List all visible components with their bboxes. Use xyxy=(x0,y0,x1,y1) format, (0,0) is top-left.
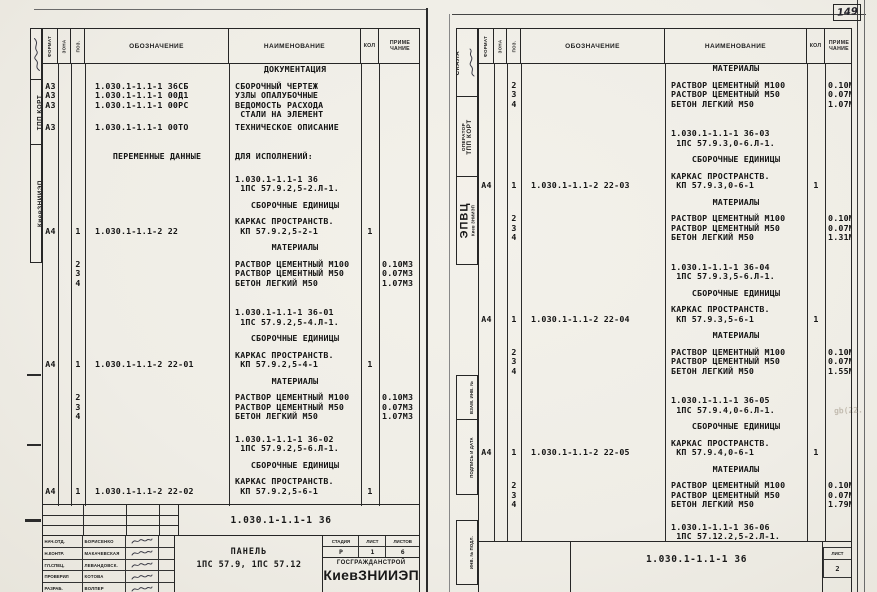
cell-designation xyxy=(521,81,665,91)
cell-note xyxy=(825,272,851,282)
cell-pos xyxy=(507,155,521,165)
signature-icon xyxy=(126,560,159,571)
system-cell: СКАЛА xyxy=(456,28,478,97)
spec-line: А3 1.030.1-1.1-1 00ТО ТЕХНИЧЕСКОЕ ОПИСАН… xyxy=(43,123,419,133)
cell-name: КП 57.9.2,5-4-1 xyxy=(229,360,361,370)
left-title-block: 1.030.1-1.1-1 36 НАЧ.ОТД. БОРИСЕНКО Н.КО… xyxy=(43,504,419,592)
cell-pos xyxy=(507,129,521,139)
cell-zone xyxy=(58,269,71,279)
cell-designation xyxy=(521,233,665,243)
signature-row: НАЧ.ОТД. БОРИСЕНКО xyxy=(43,536,174,548)
cell-note xyxy=(379,201,419,211)
cell-name: МАТЕРИАЛЫ xyxy=(665,465,807,475)
center-label: ЭПВЦ xyxy=(459,203,471,239)
cell-designation: ПЕРЕМЕННЫЕ ДАННЫЕ xyxy=(85,152,229,162)
cell-qty xyxy=(361,279,379,289)
spec-line: 3 РАСТВОР ЦЕМЕНТНЫЙ М50 0.07М3 xyxy=(43,403,419,413)
col-name: НАИМЕНОВАНИЕ xyxy=(665,29,807,63)
cell-format: А4 xyxy=(479,448,494,458)
spec-line: 4 БЕТОН ЛЕГКИЙ М50 1.07М3 xyxy=(479,100,851,110)
cell-zone xyxy=(58,377,71,387)
cell-designation xyxy=(85,393,229,403)
cell-zone xyxy=(494,172,507,182)
cell-format xyxy=(479,422,494,432)
cell-note xyxy=(379,444,419,454)
cell-pos: 4 xyxy=(507,367,521,377)
spec-line: СБОРОЧНЫЕ ЕДИНИЦЫ xyxy=(479,155,851,165)
cell-format xyxy=(479,214,494,224)
cell-note xyxy=(379,351,419,361)
side-org-cell: КиевЗНИИЭП xyxy=(30,145,42,263)
spec-line: МАТЕРИАЛЫ xyxy=(479,198,851,208)
cell-format xyxy=(479,64,494,74)
page-number-box: 149 xyxy=(833,4,861,21)
cell-name: БЕТОН ЛЕГКИЙ М50 xyxy=(229,279,361,289)
stamp-vzam-strip: ВЗАМ. ИНВ. № ПОДПИСЬ И ДАТА xyxy=(456,375,478,495)
cell-qty xyxy=(807,289,825,299)
cell-qty: 1 xyxy=(807,181,825,191)
cell-designation xyxy=(521,406,665,416)
spec-line: 1.030.1-1.1-1 36-02 xyxy=(43,435,419,445)
cell-pos xyxy=(71,444,85,454)
person-name: БОРИСЕНКО xyxy=(83,536,126,547)
stamp-vzam-label: ВЗАМ. ИНВ. № xyxy=(469,381,474,414)
sheet-label: ЛИСТ xyxy=(824,548,851,560)
spec-line: 3 РАСТВОР ЦЕМЕНТНЫЙ М50 0.07М3 xyxy=(479,90,851,100)
cell-note xyxy=(379,110,419,120)
side-signature-cell xyxy=(30,28,42,80)
cell-qty xyxy=(361,101,379,111)
cell-note xyxy=(379,360,419,370)
spec-line: 1.030.1-1.1-1 36-05 xyxy=(479,396,851,406)
cell-name: МАТЕРИАЛЫ xyxy=(665,198,807,208)
cell-designation xyxy=(85,184,229,194)
cell-designation xyxy=(521,367,665,377)
col-note: ПРИМЕ ЧАНИЕ xyxy=(825,29,853,63)
cell-qty xyxy=(807,396,825,406)
cell-qty xyxy=(361,243,379,253)
left-page-top-edge xyxy=(34,9,426,10)
cell-designation xyxy=(521,198,665,208)
cell-format: А4 xyxy=(479,315,494,325)
spec-line: 2 РАСТВОР ЦЕМЕНТНЫЙ М100 0.10М3 xyxy=(479,348,851,358)
cell-zone xyxy=(58,318,71,328)
cell-pos xyxy=(507,198,521,208)
cell-note xyxy=(825,315,851,325)
cell-format xyxy=(479,523,494,533)
cell-qty xyxy=(361,260,379,270)
cell-designation xyxy=(521,422,665,432)
spec-line: СТАЛИ НА ЭЛЕМЕНТ xyxy=(43,110,419,120)
sheet-value: 2 xyxy=(824,560,851,578)
cell-note xyxy=(825,139,851,149)
cell-designation xyxy=(521,289,665,299)
cell-format: А4 xyxy=(43,360,58,370)
org-name-1: ГОСГРАЖДАНСТРОЙ xyxy=(323,560,419,566)
role-label: ПРОВЕРИЛ xyxy=(43,571,83,582)
cell-name: СБОРОЧНЫЕ ЕДИНИЦЫ xyxy=(229,201,361,211)
cell-pos xyxy=(71,175,85,185)
cell-qty xyxy=(807,523,825,533)
cell-pos xyxy=(71,461,85,471)
signature-row: Н.КОНТР. МАКАЧЕВСКАЯ xyxy=(43,548,174,560)
spec-line: 4 БЕТОН ЛЕГКИЙ М50 1.07М3 xyxy=(43,279,419,289)
cell-qty xyxy=(807,139,825,149)
cell-qty xyxy=(807,155,825,165)
right-page-edge-line-2 xyxy=(864,0,865,592)
cell-note xyxy=(825,439,851,449)
cell-zone xyxy=(58,308,71,318)
cell-format xyxy=(43,279,58,289)
spec-line: 1ПС 57.9.4,0-6.Л-1. xyxy=(479,406,851,416)
cell-pos xyxy=(71,82,85,92)
cell-qty xyxy=(361,308,379,318)
frame-tick xyxy=(25,519,41,522)
cell-qty xyxy=(361,152,379,162)
cell-note xyxy=(825,305,851,315)
cell-qty xyxy=(361,91,379,101)
cell-pos: 4 xyxy=(507,233,521,243)
cell-designation xyxy=(85,260,229,270)
cell-pos xyxy=(507,139,521,149)
signature-icon xyxy=(126,571,159,582)
right-page-top-edge xyxy=(452,14,866,15)
cell-qty xyxy=(807,81,825,91)
cell-note: 1.07М3 xyxy=(379,279,419,289)
cell-qty xyxy=(807,272,825,282)
cell-pos xyxy=(507,289,521,299)
cell-pos xyxy=(507,523,521,533)
side-dept-cell: ТПП КОРТ xyxy=(30,80,42,145)
cell-note xyxy=(379,65,419,75)
cell-pos xyxy=(71,101,85,111)
cell-format xyxy=(43,243,58,253)
cell-note xyxy=(825,155,851,165)
cell-zone xyxy=(494,465,507,475)
cell-qty xyxy=(807,100,825,110)
cell-designation xyxy=(85,461,229,471)
cell-name: ТЕХНИЧЕСКОЕ ОПИСАНИЕ xyxy=(229,123,361,133)
cell-note xyxy=(379,477,419,487)
right-title-block: 1.030.1-1.1-1 36 ЛИСТ 2 xyxy=(479,541,851,592)
cell-format xyxy=(43,175,58,185)
cell-qty xyxy=(361,393,379,403)
cell-note xyxy=(825,523,851,533)
cell-designation: 1.030.1-1.1-2 22 xyxy=(85,227,229,237)
cell-format xyxy=(479,396,494,406)
frame-tick xyxy=(27,444,41,446)
cell-designation xyxy=(521,500,665,510)
cell-pos xyxy=(71,123,85,133)
cell-designation xyxy=(85,175,229,185)
cell-format xyxy=(479,348,494,358)
signature-row: ПРОВЕРИЛ КОТОВА xyxy=(43,571,174,583)
cell-zone xyxy=(58,91,71,101)
cell-format xyxy=(43,444,58,454)
cell-zone xyxy=(58,184,71,194)
cell-zone xyxy=(58,461,71,471)
cell-note xyxy=(379,243,419,253)
cell-qty xyxy=(807,348,825,358)
cell-designation xyxy=(85,279,229,289)
footer-left-cell xyxy=(479,542,571,592)
document-title: ПАНЕЛЬ 1ПС 57.9, 1ПС 57.12 xyxy=(175,536,323,592)
cell-qty xyxy=(361,184,379,194)
cell-format xyxy=(479,100,494,110)
person-name: МАКАЧЕВСКАЯ xyxy=(83,548,126,559)
cell-name: БЕТОН ЛЕГКИЙ М50 xyxy=(665,100,807,110)
cell-pos xyxy=(71,334,85,344)
stamp-podpis-cell: ПОДПИСЬ И ДАТА xyxy=(456,420,478,495)
cell-zone xyxy=(494,155,507,165)
cell-note xyxy=(379,377,419,387)
sheets-label: ЛИСТОВ xyxy=(386,536,419,546)
cell-zone xyxy=(494,396,507,406)
cell-name: КП 57.9.3,0-6-1 xyxy=(665,181,807,191)
cell-format xyxy=(479,198,494,208)
cell-note xyxy=(379,217,419,227)
document-designation: 1.030.1-1.1-1 36 xyxy=(571,542,822,592)
cell-qty xyxy=(361,444,379,454)
cell-pos xyxy=(71,201,85,211)
spec-line: СБОРОЧНЫЕ ЕДИНИЦЫ xyxy=(479,422,851,432)
date-cell xyxy=(159,583,174,592)
cell-qty xyxy=(361,334,379,344)
scanned-specification-sheet: 149 gb(22. ТПП КОРТ КиевЗНИИЭП СКАЛА xyxy=(0,0,877,592)
cell-qty: 1 xyxy=(807,315,825,325)
signature-icon xyxy=(461,48,478,78)
cell-pos xyxy=(71,318,85,328)
dept-label: ТПП КОРТ xyxy=(466,119,473,155)
col-qty: КОЛ xyxy=(807,29,825,63)
cell-note xyxy=(379,82,419,92)
cell-zone xyxy=(58,393,71,403)
cell-zone xyxy=(58,110,71,120)
cell-format xyxy=(479,263,494,273)
cell-designation xyxy=(521,348,665,358)
cell-zone xyxy=(494,214,507,224)
cell-format xyxy=(479,491,494,501)
stamp-podpis-label: ПОДПИСЬ И ДАТА xyxy=(469,437,474,478)
spec-line: 1ПС 57.9.2,5-4.Л-1. xyxy=(43,318,419,328)
cell-zone xyxy=(58,123,71,133)
signature-icon xyxy=(126,536,159,547)
cell-designation xyxy=(85,444,229,454)
cell-name: МАТЕРИАЛЫ xyxy=(229,243,361,253)
document-designation: 1.030.1-1.1-1 36 xyxy=(179,505,419,535)
date-cell xyxy=(159,560,174,571)
cell-zone xyxy=(494,481,507,491)
cell-zone xyxy=(494,81,507,91)
cell-name: 1ПС 57.9.3,5-6.Л-1. xyxy=(665,272,807,282)
col-pos: ПОЗ. xyxy=(71,29,85,63)
spec-line: 1.030.1-1.1-1 36-03 xyxy=(479,129,851,139)
cell-name: 1ПС 57.9.2,5-4.Л-1. xyxy=(229,318,361,328)
sheet-value: 1 xyxy=(359,547,386,557)
cell-zone xyxy=(58,360,71,370)
sheet-box: ЛИСТ 2 xyxy=(822,542,851,592)
cell-zone xyxy=(494,100,507,110)
cell-format xyxy=(43,412,58,422)
computing-center-cell: ЭПВЦ Киев ЗНИИЭП xyxy=(456,177,478,265)
cell-zone xyxy=(494,289,507,299)
cell-zone xyxy=(494,263,507,273)
cell-qty xyxy=(807,198,825,208)
spec-line: 4 БЕТОН ЛЕГКИЙ М50 1.07М3 xyxy=(43,412,419,422)
cell-qty: 1 xyxy=(361,360,379,370)
cell-designation xyxy=(85,201,229,211)
spec-line: СБОРОЧНЫЕ ЕДИНИЦЫ xyxy=(43,201,419,211)
cell-pos xyxy=(507,331,521,341)
cell-name: СБОРОЧНЫЕ ЕДИНИЦЫ xyxy=(665,422,807,432)
cell-qty xyxy=(807,331,825,341)
cell-pos xyxy=(507,272,521,282)
cell-designation xyxy=(521,481,665,491)
cell-pos xyxy=(71,377,85,387)
spec-line: 4 БЕТОН ЛЕГКИЙ М50 1.79М3 xyxy=(479,500,851,510)
spec-line: 2 РАСТВОР ЦЕМЕНТНЫЙ М100 0.10М3 xyxy=(43,260,419,270)
cell-format xyxy=(479,357,494,367)
cell-qty xyxy=(807,224,825,234)
cell-format xyxy=(479,139,494,149)
cell-format xyxy=(43,377,58,387)
date-cell xyxy=(159,536,174,547)
col-qty: КОЛ xyxy=(361,29,379,63)
spec-line: ПЕРЕМЕННЫЕ ДАННЫЕ ДЛЯ ИСПОЛНЕНИЙ: xyxy=(43,152,419,162)
cell-zone xyxy=(58,243,71,253)
page-number: 149 xyxy=(836,6,858,18)
cell-format xyxy=(479,331,494,341)
spec-line: ДОКУМЕНТАЦИЯ xyxy=(43,65,419,75)
cell-qty xyxy=(807,422,825,432)
cell-format xyxy=(479,129,494,139)
cell-note xyxy=(825,263,851,273)
cell-format xyxy=(43,201,58,211)
cell-note xyxy=(379,334,419,344)
col-designation: ОБОЗНАЧЕНИЕ xyxy=(521,29,665,63)
cell-pos xyxy=(71,243,85,253)
cell-format xyxy=(43,260,58,270)
cell-name: ДЛЯ ИСПОЛНЕНИЙ: xyxy=(229,152,361,162)
cell-format: А3 xyxy=(43,101,58,111)
cell-note xyxy=(825,448,851,458)
cell-zone xyxy=(58,351,71,361)
organization-block: ГОСГРАЖДАНСТРОЙ КиевЗНИИЭП xyxy=(323,558,419,592)
cell-format: А4 xyxy=(43,227,58,237)
stamp-inv-strip: ИНВ. № ПОДЛ. xyxy=(456,520,478,585)
cell-format xyxy=(43,403,58,413)
frame-tick xyxy=(27,374,41,376)
cell-qty xyxy=(807,406,825,416)
cell-pos xyxy=(71,65,85,75)
col-name: НАИМЕНОВАНИЕ xyxy=(229,29,361,63)
cell-qty xyxy=(807,367,825,377)
cell-zone xyxy=(494,139,507,149)
spec-line: 2 РАСТВОР ЦЕМЕНТНЫЙ М100 0.10М3 xyxy=(479,481,851,491)
cell-pos: 1 xyxy=(71,360,85,370)
spec-line: 2 РАСТВОР ЦЕМЕНТНЫЙ М100 0.10М3 xyxy=(43,393,419,403)
cell-pos: 4 xyxy=(507,500,521,510)
cell-format xyxy=(43,318,58,328)
cell-qty xyxy=(361,269,379,279)
cell-designation xyxy=(521,396,665,406)
cell-qty xyxy=(807,64,825,74)
stamp-inv-cell: ИНВ. № ПОДЛ. xyxy=(456,520,478,585)
cell-designation xyxy=(85,65,229,75)
cell-note: 1.79М3 xyxy=(825,500,851,510)
left-table-header: ФОРМАТ ЗОНА ПОЗ. ОБОЗНАЧЕНИЕ НАИМЕНОВАНИ… xyxy=(43,29,419,64)
cell-format xyxy=(479,90,494,100)
revision-grid xyxy=(43,505,179,535)
cell-designation: 1.030.1-1.1-2 22-04 xyxy=(521,315,665,325)
cell-qty xyxy=(361,412,379,422)
role-label: НАЧ.ОТД. xyxy=(43,536,83,547)
cell-designation xyxy=(85,110,229,120)
cell-name: БЕТОН ЛЕГКИЙ М50 xyxy=(665,233,807,243)
cell-note xyxy=(825,172,851,182)
role-label: Н.КОНТР. xyxy=(43,548,83,559)
cell-designation xyxy=(521,272,665,282)
cell-designation xyxy=(521,523,665,533)
cell-note xyxy=(379,101,419,111)
spec-line: СБОРОЧНЫЕ ЕДИНИЦЫ xyxy=(43,461,419,471)
cell-note: 1.55М3 xyxy=(825,367,851,377)
cell-designation xyxy=(521,331,665,341)
cell-name: 1ПС 57.9.4,0-6.Л-1. xyxy=(665,406,807,416)
cell-pos: 1 xyxy=(507,181,521,191)
cell-zone xyxy=(494,64,507,74)
spec-line: 4 БЕТОН ЛЕГКИЙ М50 1.55М3 xyxy=(479,367,851,377)
signature-icon xyxy=(126,583,159,592)
right-spec-table: ФОРМАТ ЗОНА ПОЗ. ОБОЗНАЧЕНИЕ НАИМЕНОВАНИ… xyxy=(478,28,852,592)
person-name: ВОЛПЕР xyxy=(83,583,126,592)
cell-designation xyxy=(521,357,665,367)
cell-note xyxy=(379,308,419,318)
cell-zone xyxy=(494,439,507,449)
cell-qty: 1 xyxy=(361,227,379,237)
cell-zone xyxy=(58,477,71,487)
center-sub-label: Киев ЗНИИЭП xyxy=(471,203,476,239)
col-pos: ПОЗ. xyxy=(507,29,521,63)
cell-zone xyxy=(494,523,507,533)
signature-table: НАЧ.ОТД. БОРИСЕНКО Н.КОНТР. МАКАЧЕВСКАЯ xyxy=(43,536,175,592)
cell-zone xyxy=(58,82,71,92)
cell-zone xyxy=(58,334,71,344)
stamp-inv-label: ИНВ. № ПОДЛ. xyxy=(469,536,474,569)
cell-pos xyxy=(71,110,85,120)
cell-format xyxy=(43,308,58,318)
cell-format xyxy=(479,481,494,491)
left-page-right-edge xyxy=(426,8,428,592)
cell-note xyxy=(379,227,419,237)
cell-designation: 1.030.1-1.1-1 00ТО xyxy=(85,123,229,133)
cell-designation xyxy=(85,318,229,328)
spec-line: 2 РАСТВОР ЦЕМЕНТНЫЙ М100 0.10М3 xyxy=(479,81,851,91)
date-cell xyxy=(159,548,174,559)
cell-name: СБОРОЧНЫЕ ЕДИНИЦЫ xyxy=(229,334,361,344)
cell-qty xyxy=(807,481,825,491)
cell-zone xyxy=(58,412,71,422)
cell-qty xyxy=(361,403,379,413)
cell-zone xyxy=(494,367,507,377)
cell-designation xyxy=(521,155,665,165)
cell-name: МАТЕРИАЛЫ xyxy=(665,331,807,341)
cell-name: 1ПС 57.9.2,5-6.Л-1. xyxy=(229,444,361,454)
cell-pos xyxy=(71,308,85,318)
spec-line: 1.030.1-1.1-1 36-06 xyxy=(479,523,851,533)
cell-qty xyxy=(807,500,825,510)
signature-row: ГЛ.СПЕЦ. ЛЕВАНДОВСК. xyxy=(43,560,174,572)
